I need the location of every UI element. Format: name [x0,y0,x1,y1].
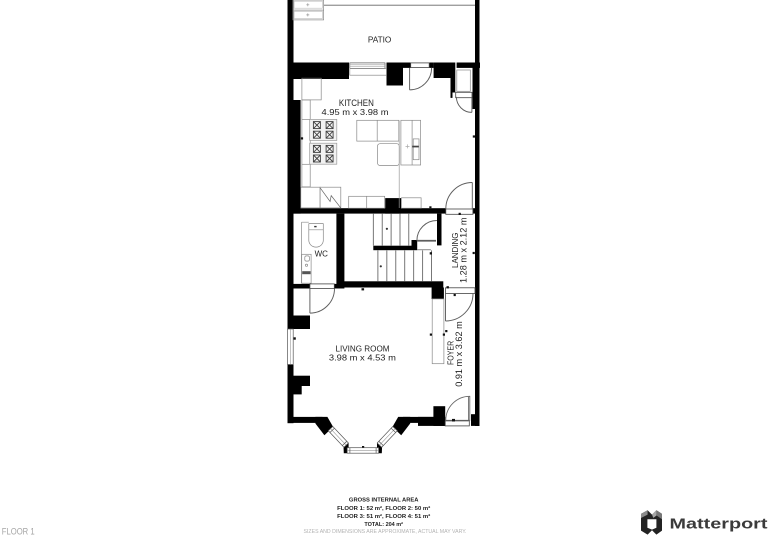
svg-text:1.28 m x 2.12 m: 1.28 m x 2.12 m [459,218,469,284]
svg-text:FLOOR 1: 52 m², FLOOR 2: 50 m²: FLOOR 1: 52 m², FLOOR 2: 50 m² [337,505,430,512]
svg-text:0.91 m x 3.62 m: 0.91 m x 3.62 m [454,321,464,387]
svg-text:SIZES AND DIMENSIONS ARE APPRO: SIZES AND DIMENSIONS ARE APPROXIMATE, AC… [304,529,467,535]
svg-text:FLOOR 3: 51 m², FLOOR 4: 51 m²: FLOOR 3: 51 m², FLOOR 4: 51 m² [337,513,430,520]
svg-text:Matterport: Matterport [670,516,768,532]
svg-text:FLOOR 1: FLOOR 1 [2,526,35,536]
svg-text:WC: WC [315,249,328,259]
svg-text:4.95 m x 3.98 m: 4.95 m x 3.98 m [322,107,389,117]
svg-text:3.98 m x 4.53 m: 3.98 m x 4.53 m [329,353,396,363]
svg-text:PATIO: PATIO [368,34,392,44]
svg-text:GROSS INTERNAL AREA: GROSS INTERNAL AREA [349,498,419,504]
svg-text:TOTAL: 204 m²: TOTAL: 204 m² [364,521,403,528]
